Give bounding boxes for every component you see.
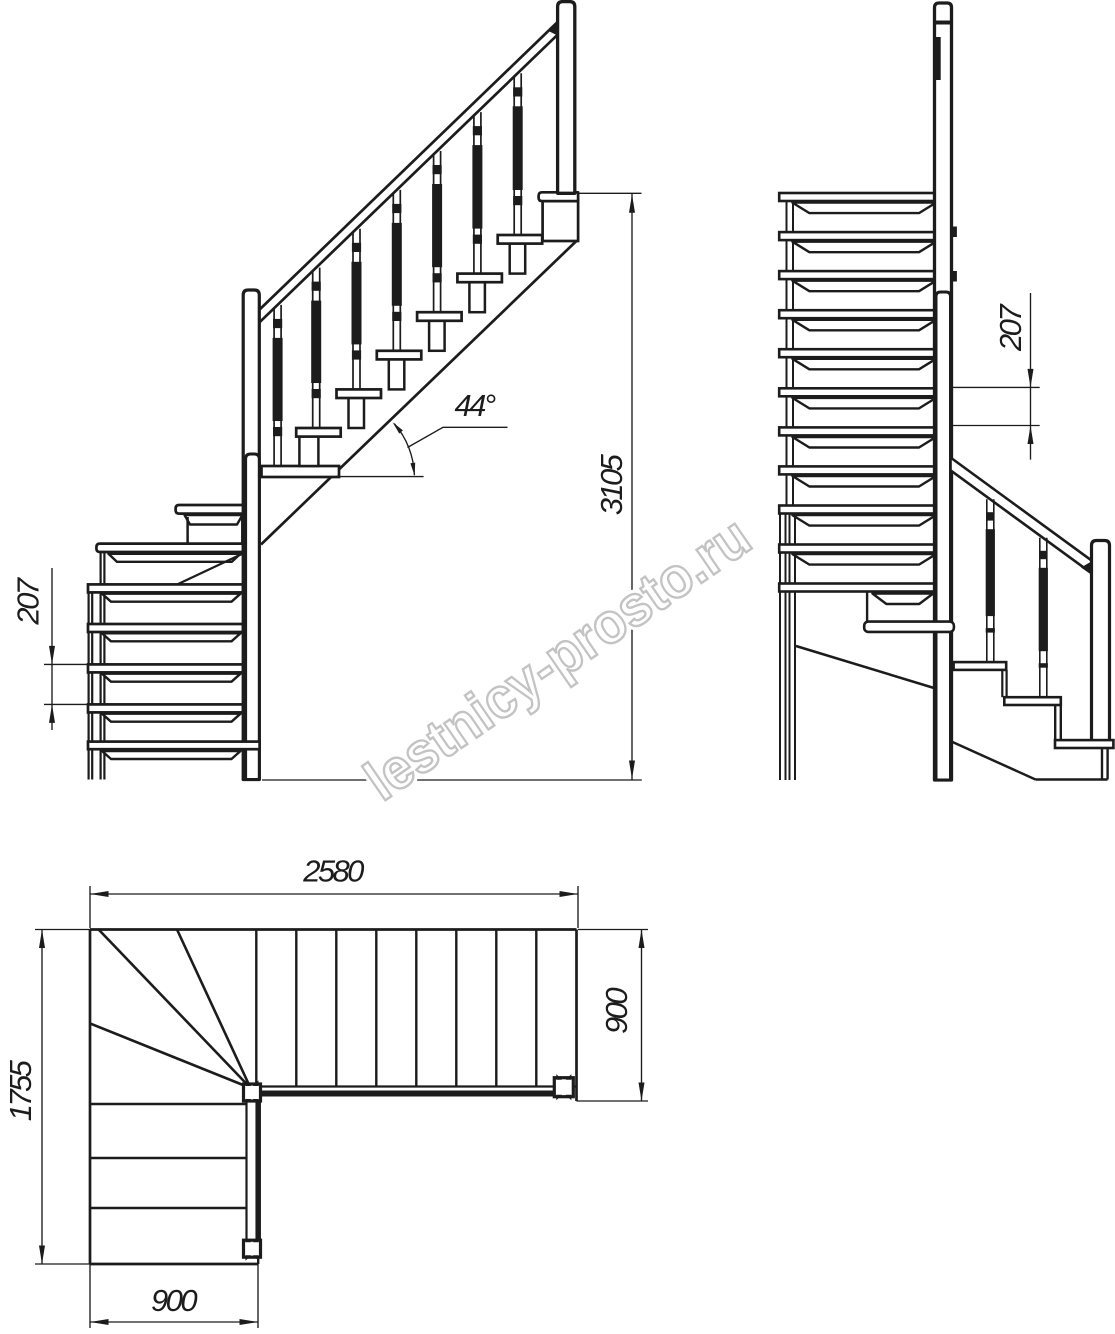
svg-text:900: 900 — [151, 1283, 197, 1318]
svg-text:2580: 2580 — [302, 853, 364, 888]
svg-text:44°: 44° — [454, 388, 495, 423]
svg-text:207: 207 — [11, 576, 46, 625]
svg-text:207: 207 — [993, 303, 1028, 352]
svg-text:900: 900 — [599, 988, 634, 1034]
svg-text:3105: 3105 — [594, 453, 629, 515]
svg-text:1755: 1755 — [3, 1059, 38, 1121]
